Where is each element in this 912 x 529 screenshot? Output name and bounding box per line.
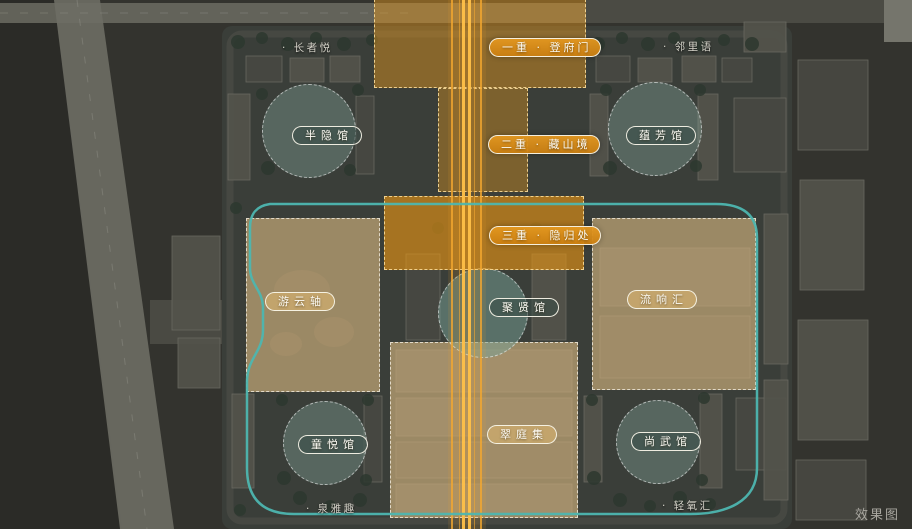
spot-label-quanyaqu: · 泉雅趣	[306, 501, 357, 516]
pill-liuxiang-hub: 流响汇	[627, 290, 697, 309]
pill-second-gate: 二重 · 藏山境	[488, 135, 600, 154]
pill-cuiting-court: 翠庭集	[487, 425, 557, 444]
pill-shangwu-hall: 尚武馆	[631, 432, 701, 451]
pill-first-gate: 一重 · 登府门	[489, 38, 601, 57]
spot-label-linliyu: · 邻里语	[663, 39, 714, 54]
pill-banyin-hall: 半隐馆	[292, 126, 362, 145]
spot-label-changzheyue: · 长者悦	[282, 40, 333, 55]
pill-youyun-axis: 游云轴	[265, 292, 335, 311]
watermark-rendering-note: 效果图	[855, 504, 900, 523]
pill-juxian-hall: 聚贤馆	[489, 298, 559, 317]
pill-tongyue-hall: 童悦馆	[298, 435, 368, 454]
masterplan-rendering: 一重 · 登府门 二重 · 藏山境 三重 · 隐归处 半隐馆 蕴芳馆 聚贤馆 童…	[0, 0, 912, 529]
pill-third-gate: 三重 · 隐归处	[489, 226, 601, 245]
pill-yunfang-hall: 蕴芳馆	[626, 126, 696, 145]
spot-label-qingyanghui: · 轻氧汇	[662, 498, 713, 513]
